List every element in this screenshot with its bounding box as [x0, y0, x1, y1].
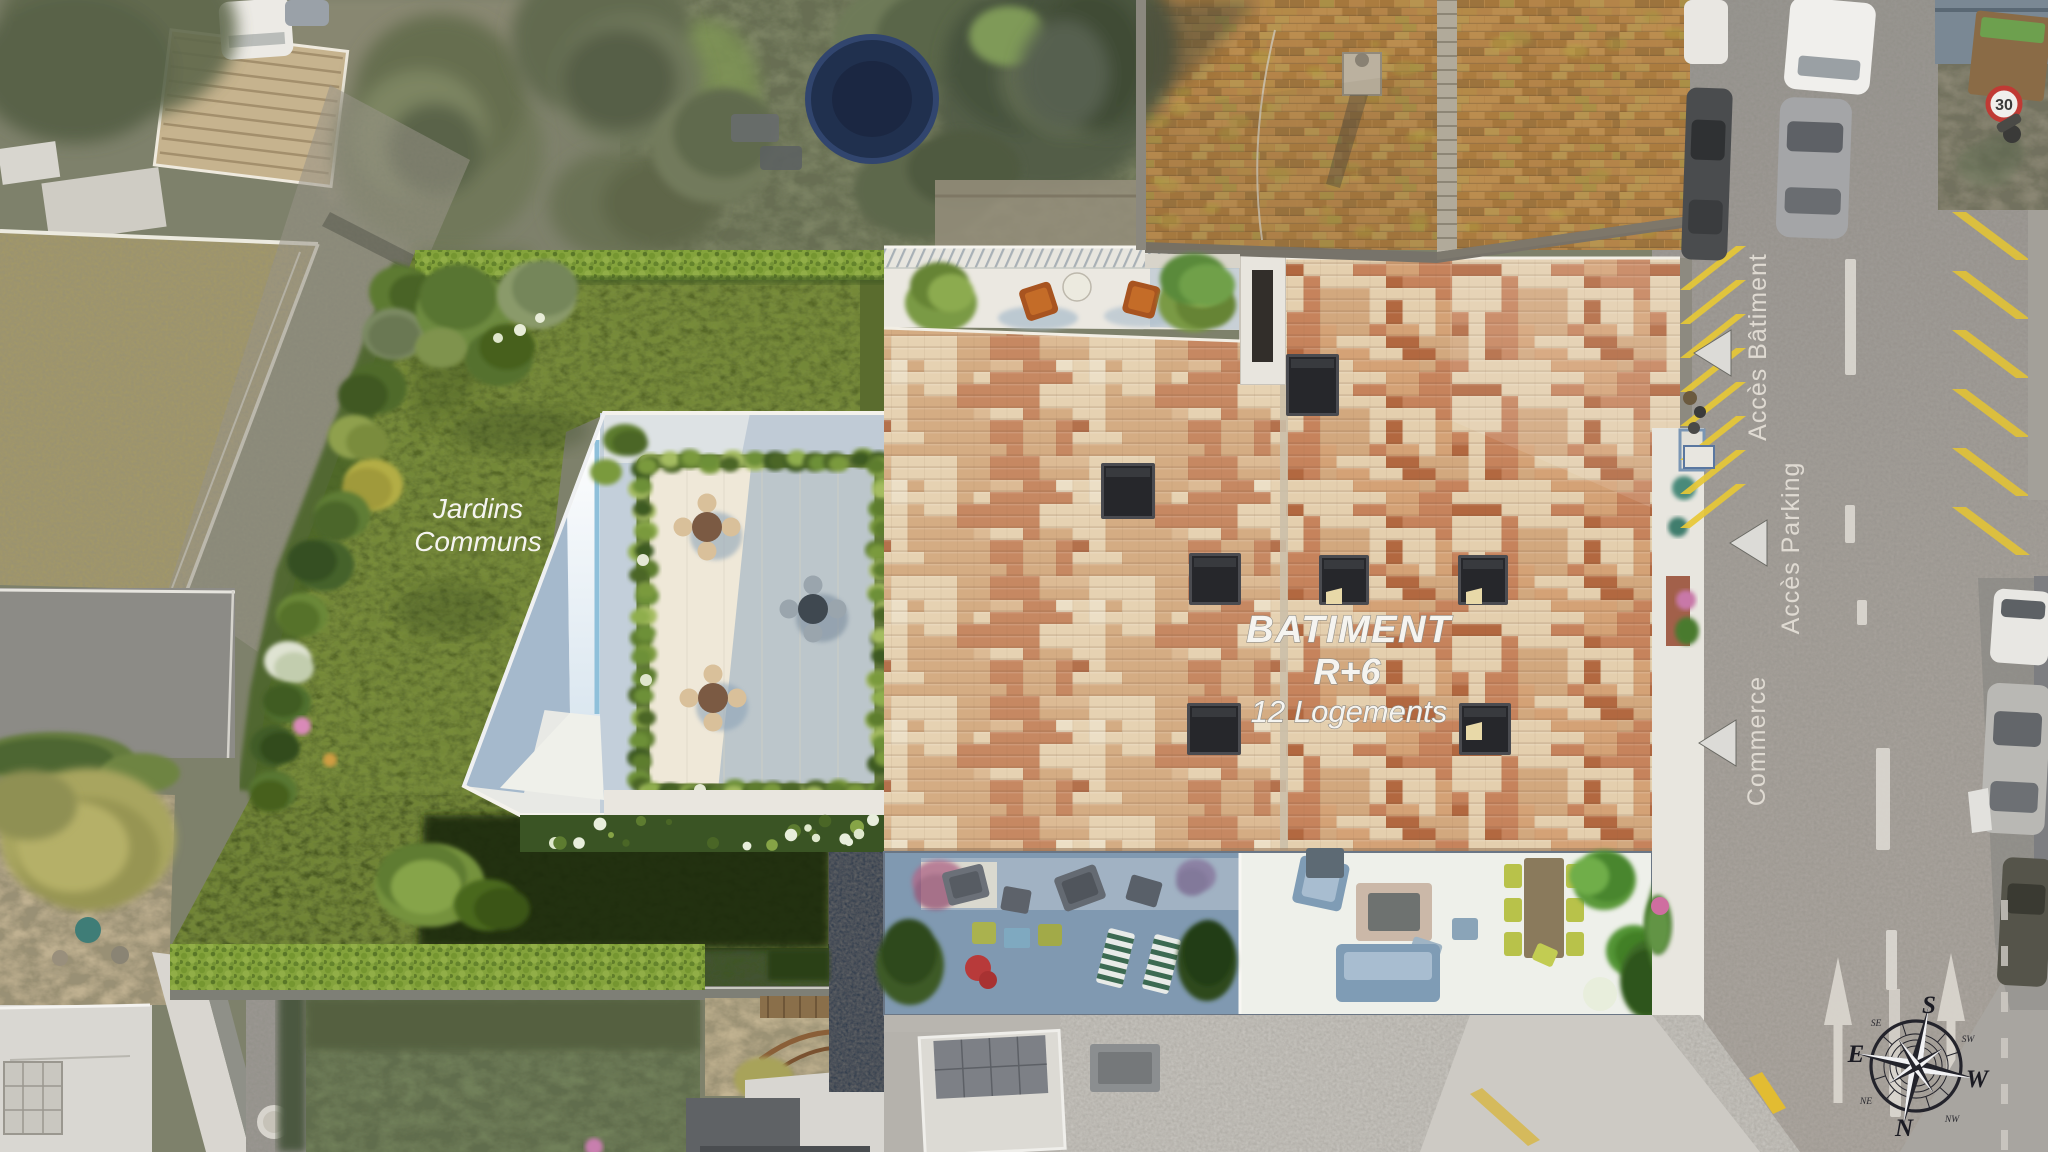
svg-text:NE: NE: [1859, 1097, 1872, 1107]
svg-text:E: E: [1847, 1041, 1865, 1068]
svg-text:N: N: [1894, 1115, 1914, 1142]
svg-text:W: W: [1966, 1066, 1990, 1093]
svg-text:R+6: R+6: [1313, 651, 1381, 692]
svg-text:SW: SW: [1962, 1035, 1976, 1045]
svg-text:SE: SE: [1871, 1019, 1882, 1029]
svg-text:BATIMENT: BATIMENT: [1246, 609, 1453, 651]
svg-text:30: 30: [1995, 97, 2013, 114]
svg-text:Communs: Communs: [414, 526, 542, 557]
svg-text:Commerce: Commerce: [1743, 676, 1771, 806]
svg-text:S: S: [1922, 992, 1936, 1019]
svg-text:Accès Bâtiment: Accès Bâtiment: [1744, 253, 1772, 441]
svg-text:12 Logements: 12 Logements: [1251, 694, 1447, 729]
svg-text:NW: NW: [1944, 1115, 1960, 1125]
svg-text:Accès Parking: Accès Parking: [1777, 462, 1805, 635]
svg-text:Jardins: Jardins: [432, 493, 523, 524]
